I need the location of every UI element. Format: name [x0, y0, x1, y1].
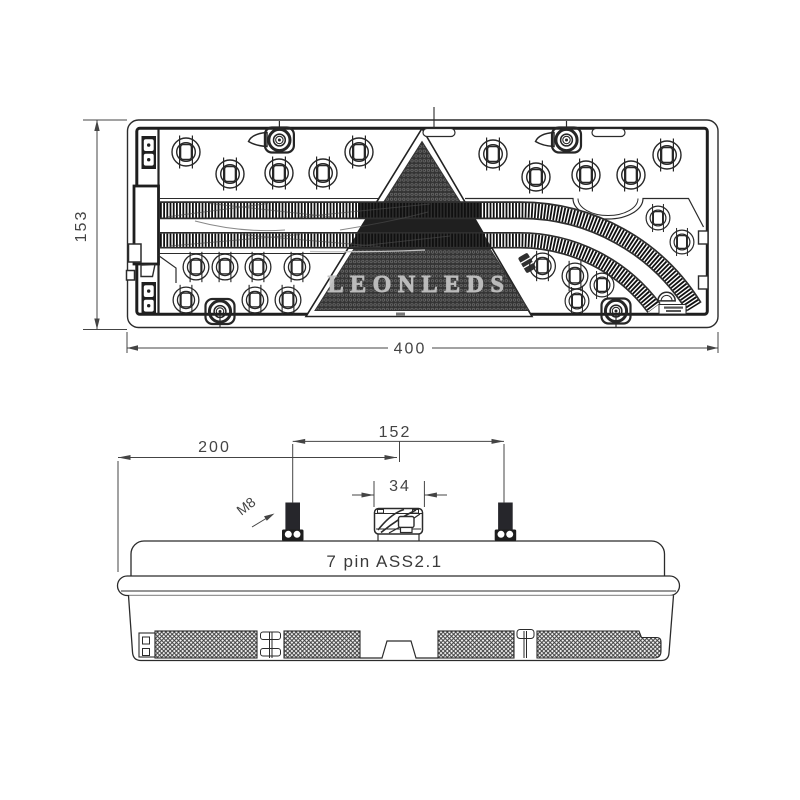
svg-text:LEONLEDS: LEONLEDS — [328, 272, 511, 298]
svg-text:34: 34 — [389, 478, 411, 495]
svg-text:200: 200 — [198, 439, 231, 456]
svg-text:7 pin ASS2.1: 7 pin ASS2.1 — [326, 552, 442, 571]
svg-text:152: 152 — [379, 424, 412, 441]
svg-text:400: 400 — [394, 341, 427, 358]
svg-text:153: 153 — [73, 210, 90, 243]
